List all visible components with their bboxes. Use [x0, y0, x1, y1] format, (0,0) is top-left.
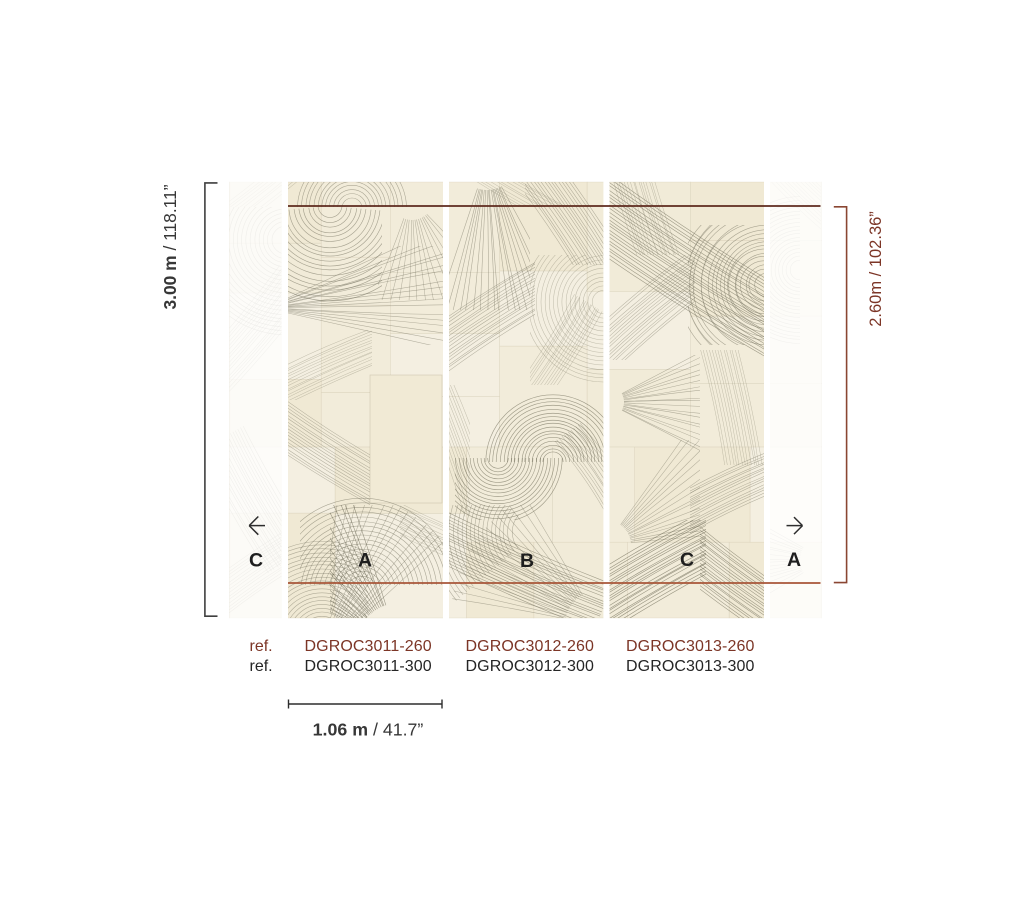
- svg-text:3.00 m / 118.11”: 3.00 m / 118.11”: [160, 184, 180, 309]
- svg-text:DGROC3011-300: DGROC3011-300: [305, 658, 432, 675]
- svg-text:B: B: [520, 550, 534, 572]
- svg-text:1.06 m / 41.7”: 1.06 m / 41.7”: [313, 720, 424, 740]
- svg-text:C: C: [680, 549, 694, 571]
- svg-text:DGROC3011-260: DGROC3011-260: [305, 638, 432, 655]
- svg-text:DGROC3013-300: DGROC3013-300: [626, 658, 754, 675]
- svg-text:C: C: [249, 550, 263, 572]
- svg-text:2.60m / 102.36”: 2.60m / 102.36”: [867, 211, 885, 327]
- svg-text:DGROC3013-260: DGROC3013-260: [626, 638, 754, 655]
- svg-text:A: A: [787, 549, 801, 571]
- svg-text:DGROC3012-300: DGROC3012-300: [466, 658, 594, 675]
- svg-text:ref.: ref.: [250, 658, 273, 675]
- svg-text:ref.: ref.: [250, 638, 273, 655]
- svg-text:DGROC3012-260: DGROC3012-260: [466, 638, 594, 655]
- svg-text:A: A: [358, 550, 372, 572]
